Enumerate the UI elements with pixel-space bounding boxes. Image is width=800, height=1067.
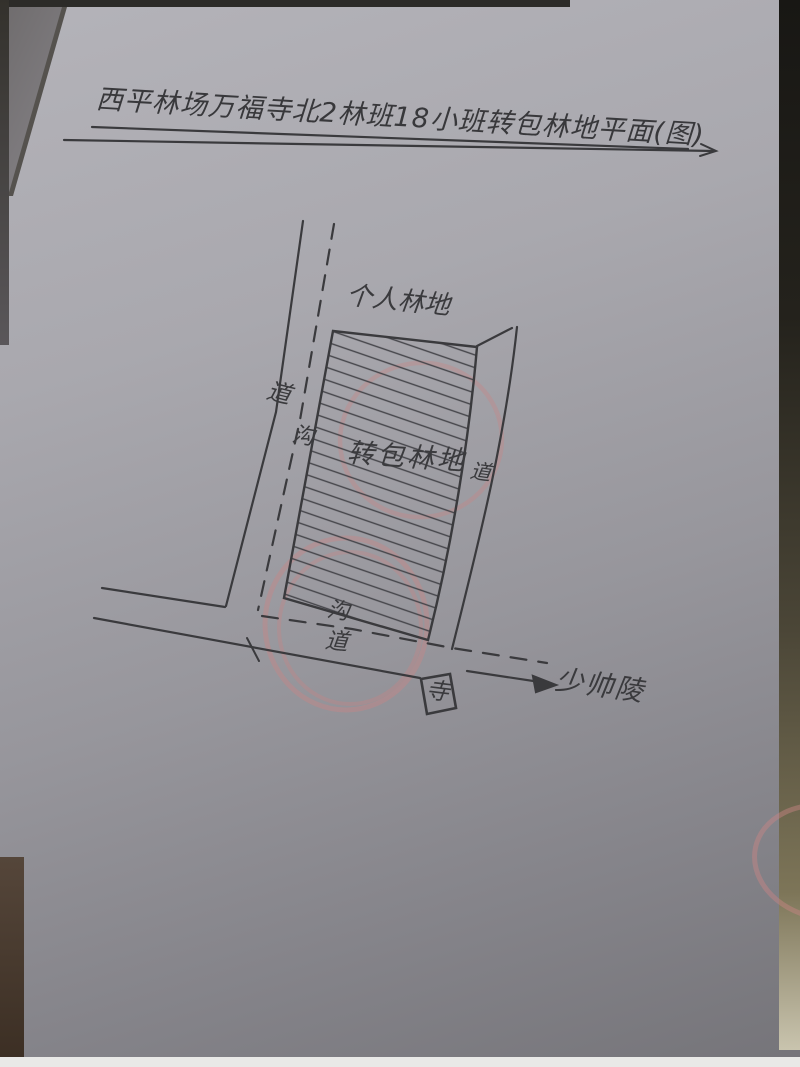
map-drawing: [0, 0, 800, 1067]
label-bottom-road-ditch: 沟: [326, 600, 351, 625]
label-bottom-road: 道: [324, 630, 349, 655]
parcel-hatched-area: [284, 331, 477, 640]
bottom-road-lines: [94, 616, 547, 678]
label-subcontract-forest: 转包林地: [346, 440, 468, 475]
photo-of-paper-map: 西平林场万福寺北2林班18小班转包林地平面(图) 个人林地 转包林地 道 沟 道…: [0, 0, 800, 1067]
label-temple: 寺: [425, 680, 451, 706]
destination-arrow: [467, 671, 556, 692]
label-left-road-ditch: 沟: [290, 424, 316, 449]
label-right-road: 道: [469, 461, 493, 485]
